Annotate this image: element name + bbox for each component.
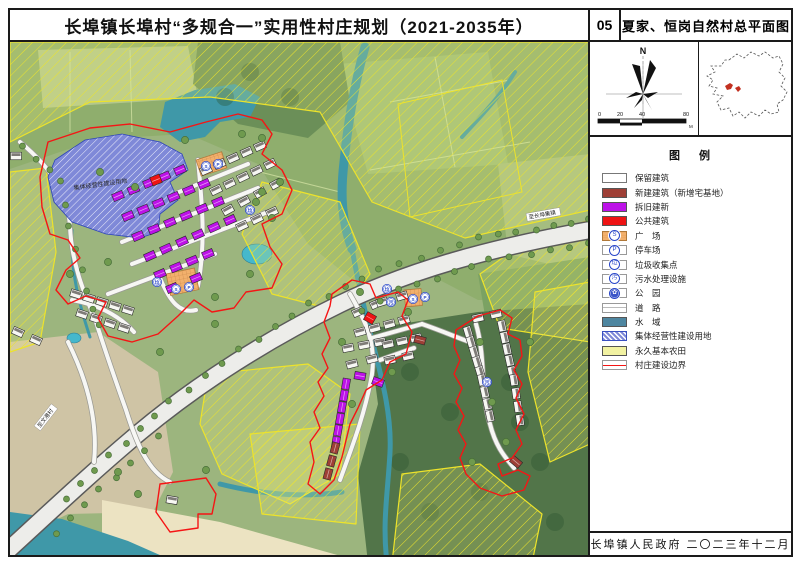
sheet-title: 夏家、恒岗自然村总平面图 — [621, 10, 791, 40]
map-canvas: 集体经营性建设用地SP垃垃SP垃污SP污至长埠集镇至文港村 — [10, 42, 588, 555]
compass-rose-icon: N 0 20 — [590, 42, 697, 132]
svg-text:S: S — [411, 297, 414, 302]
legend-label: 停车场 — [635, 244, 661, 256]
legend-swatch-solid-icon — [602, 188, 627, 198]
svg-text:S: S — [174, 287, 177, 292]
site-plan-map: 集体经营性建设用地SP垃垃SP垃污SP污至长埠集镇至文港村 — [10, 42, 590, 555]
sheet-number: 05 — [590, 10, 621, 40]
legend-swatch-collective-icon — [602, 331, 627, 341]
legend-item: 拆旧建新 — [602, 200, 785, 214]
legend-swatch-solid-icon — [602, 202, 627, 212]
legend-swatch-icon-icon: P — [602, 245, 627, 255]
svg-text:垃: 垃 — [385, 286, 390, 293]
legend-label: 拆旧建新 — [635, 201, 669, 213]
svg-text:20: 20 — [617, 112, 623, 118]
legend-swatch-retain-icon — [602, 173, 627, 183]
main-title: 长埠镇长埠村“多规合一”实用性村庄规划（2021-2035年） — [10, 10, 590, 40]
svg-text:80: 80 — [683, 112, 689, 118]
svg-text:P: P — [423, 295, 426, 300]
legend-label: 公共建筑 — [635, 215, 669, 227]
legend-item: S广 场 — [602, 229, 785, 243]
legend-label: 村庄建设边界 — [635, 359, 686, 371]
legend-item: 公共建筑 — [602, 214, 785, 228]
legend-label: 新建建筑（新增宅基地） — [635, 187, 729, 199]
scale-bar: 0 20 40 80 M — [598, 112, 693, 129]
legend-label: 污水处理设施 — [635, 273, 686, 285]
legend-label: 水 域 — [635, 316, 661, 328]
legend-title: 图 例 — [602, 147, 785, 163]
legend-swatch-solid-icon — [602, 317, 627, 327]
legend-item: 水 域 — [602, 315, 785, 329]
legend-list: 保留建筑新建建筑（新增宅基地）拆旧建新公共建筑S广 场P停车场垃垃圾收集点污污水… — [602, 171, 785, 372]
legend-item: 垃垃圾收集点 — [602, 257, 785, 271]
legend-label: 集体经营性建设用地 — [635, 330, 712, 342]
legend-label: 道 路 — [635, 302, 661, 314]
location-inset-map — [699, 42, 791, 135]
svg-text:P: P — [187, 285, 190, 290]
compass-cell: N 0 20 — [590, 42, 699, 135]
svg-text:污: 污 — [389, 299, 394, 306]
legend-swatch-boundary-icon — [602, 360, 627, 370]
legend-item: 村庄建设边界 — [602, 358, 785, 372]
svg-text:S: S — [204, 164, 207, 169]
legend-label: 保留建筑 — [635, 172, 669, 184]
legend-label: 永久基本农田 — [635, 345, 686, 357]
legend-swatch-icon-icon: 垃 — [602, 260, 627, 270]
legend-label: 广 场 — [635, 230, 661, 242]
plaza-icon: S — [609, 230, 620, 241]
legend-glyph-icon: 污 — [609, 273, 620, 284]
legend-item: 新建建筑（新增宅基地） — [602, 185, 785, 199]
legend-item: 集体经营性建设用地 — [602, 329, 785, 343]
svg-text:垃: 垃 — [155, 279, 160, 286]
legend-label: 公 园 — [635, 287, 661, 299]
legend-swatch-icon-fill-icon: ✿ — [602, 288, 627, 298]
legend-item: P停车场 — [602, 243, 785, 257]
title-bar: 长埠镇长埠村“多规合一”实用性村庄规划（2021-2035年） 05 夏家、恒岗… — [10, 10, 791, 42]
svg-text:40: 40 — [639, 112, 645, 118]
legend-swatch-icon-icon: 污 — [602, 274, 627, 284]
plan-sheet-page: 长埠镇长埠村“多规合一”实用性村庄规划（2021-2035年） 05 夏家、恒岗… — [0, 0, 802, 567]
legend-item: 保留建筑 — [602, 171, 785, 185]
legend-swatch-plaza-icon: S — [602, 231, 627, 241]
svg-text:0: 0 — [598, 112, 601, 118]
legend-label: 垃圾收集点 — [635, 259, 678, 271]
panel-top-row: N 0 20 — [590, 42, 791, 137]
svg-text:M: M — [689, 124, 693, 129]
right-panel: N 0 20 — [590, 42, 791, 555]
svg-text:污: 污 — [485, 379, 490, 386]
park-icon: ✿ — [609, 288, 620, 299]
signature-bar: 长埠镇人民政府 二〇二三年十二月 — [590, 531, 791, 555]
legend-item: 永久基本农田 — [602, 344, 785, 358]
legend-glyph-icon: P — [609, 245, 620, 256]
legend-swatch-road-icon — [602, 303, 627, 313]
legend: 图 例 保留建筑新建建筑（新增宅基地）拆旧建新公共建筑S广 场P停车场垃垃圾收集… — [590, 137, 791, 531]
legend-glyph-icon: 垃 — [609, 259, 620, 270]
svg-text:N: N — [640, 46, 647, 56]
svg-text:垃: 垃 — [248, 207, 253, 214]
legend-item: 道 路 — [602, 301, 785, 315]
legend-swatch-solid-icon — [602, 216, 627, 226]
legend-item: 污污水处理设施 — [602, 272, 785, 286]
sheet-body: 集体经营性建设用地SP垃垃SP垃污SP污至长埠集镇至文港村 N — [10, 42, 791, 555]
svg-text:P: P — [216, 162, 219, 167]
legend-swatch-solid-icon — [602, 346, 627, 356]
plan-sheet-frame: 长埠镇长埠村“多规合一”实用性村庄规划（2021-2035年） 05 夏家、恒岗… — [8, 8, 793, 557]
legend-item: ✿公 园 — [602, 286, 785, 300]
county-outline-icon — [699, 42, 791, 132]
